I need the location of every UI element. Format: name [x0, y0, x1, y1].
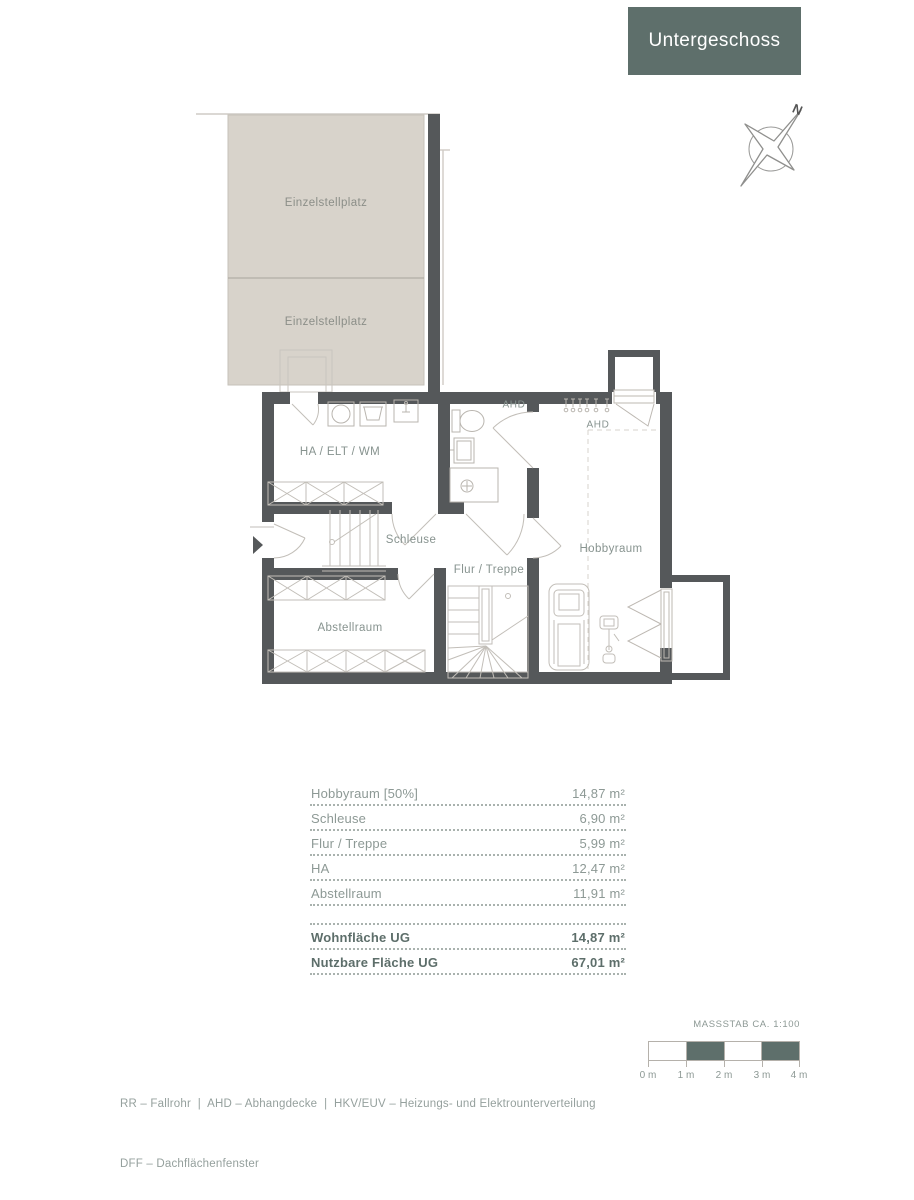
legend-line-2: DFF – Dachflächenfenster — [120, 1154, 596, 1174]
washer-icon — [328, 402, 354, 426]
scale-segment — [762, 1042, 799, 1060]
scale-tick — [762, 1061, 763, 1067]
scale-segment — [687, 1042, 725, 1060]
scale-tick — [686, 1061, 687, 1067]
room-label-hobbyraum: Hobbyraum — [579, 543, 642, 555]
total-label: Wohnfläche UG — [311, 930, 410, 945]
scale-label: 0 m — [640, 1070, 657, 1081]
parking-area — [228, 115, 424, 385]
total-value: 14,87 m² — [571, 930, 625, 945]
room-label-schleuse: Schleuse — [386, 534, 437, 546]
table-row-total: Nutzbare Fläche UG 67,01 m² — [310, 950, 626, 975]
window-top-icon — [614, 390, 654, 426]
room-label-abstellraum: Abstellraum — [317, 622, 382, 634]
label-ahd-1: AHD — [503, 400, 526, 411]
area-label: Schleuse — [311, 811, 366, 826]
area-value: 12,47 m² — [572, 861, 625, 876]
exercise-bike-icon — [600, 616, 619, 663]
scale-label: 4 m — [791, 1070, 808, 1081]
table-row: Hobbyraum [50%] 14,87 m² — [310, 781, 626, 806]
treadmill-icon — [549, 584, 589, 670]
area-value: 11,91 m² — [573, 886, 625, 901]
label-ahd-2: AHD — [587, 420, 610, 431]
stairs-upper — [322, 510, 386, 571]
table-divider — [310, 906, 626, 925]
bath-sink-icon — [450, 438, 474, 463]
toilet-icon — [452, 410, 484, 432]
scale-segment — [725, 1042, 763, 1060]
laundry-sink-icon — [360, 402, 386, 426]
room-label-flur-treppe: Flur / Treppe — [454, 564, 524, 576]
scale-segment — [649, 1042, 687, 1060]
room-label-einzelstellplatz-1: Einzelstellplatz — [285, 197, 367, 209]
legend-line-1: RR – Fallrohr | AHD – Abhangdecke | HKV/… — [120, 1094, 596, 1114]
total-value: 67,01 m² — [571, 955, 625, 970]
area-label: Hobbyraum [50%] — [311, 786, 418, 801]
scale-tick — [724, 1061, 725, 1067]
area-value: 6,90 m² — [580, 811, 625, 826]
scale-tick — [799, 1061, 800, 1067]
legend: RR – Fallrohr | AHD – Abhangdecke | HKV/… — [120, 1054, 596, 1194]
area-table: Hobbyraum [50%] 14,87 m² Schleuse 6,90 m… — [310, 781, 626, 975]
entrance-arrow-icon — [253, 536, 263, 554]
scale-bar — [648, 1041, 800, 1061]
scale-caption: MASSSTAB CA. 1:100 — [648, 1019, 800, 1030]
table-row: Flur / Treppe 5,99 m² — [310, 831, 626, 856]
area-label: HA — [311, 861, 329, 876]
stairs-winder — [448, 586, 528, 678]
shower-icon — [450, 468, 498, 502]
table-row: HA 12,47 m² — [310, 856, 626, 881]
table-row-total: Wohnfläche UG 14,87 m² — [310, 925, 626, 950]
page: { "title": { "label": "Untergeschoss" },… — [0, 0, 914, 1200]
room-label-ha-elt-wm: HA / ELT / WM — [300, 446, 380, 458]
area-value: 5,99 m² — [580, 836, 625, 851]
scale-label: 1 m — [678, 1070, 695, 1081]
area-value: 14,87 m² — [572, 786, 625, 801]
scale-label: 3 m — [754, 1070, 771, 1081]
table-row: Abstellraum 11,91 m² — [310, 881, 626, 906]
area-label: Abstellraum — [311, 886, 382, 901]
total-label: Nutzbare Fläche UG — [311, 955, 438, 970]
table-row: Schleuse 6,90 m² — [310, 806, 626, 831]
room-label-einzelstellplatz-2: Einzelstellplatz — [285, 316, 367, 328]
scale-tick — [648, 1061, 649, 1067]
area-label: Flur / Treppe — [311, 836, 387, 851]
scale-label: 2 m — [716, 1070, 733, 1081]
